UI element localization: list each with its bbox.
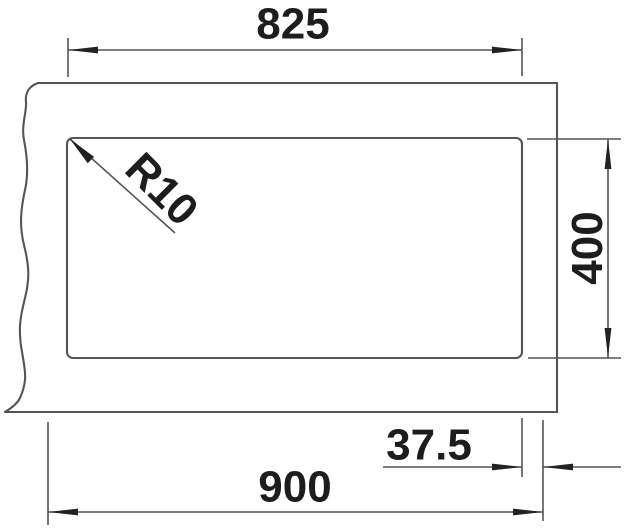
arrow-400-down-icon [605,328,612,358]
object-lines [5,83,557,412]
dimension-900-label: 900 [258,463,331,512]
dimension-lines [48,38,621,525]
arrow-375-right-icon [543,464,573,471]
arrowheads [48,47,611,516]
dimension-825-label: 825 [256,0,329,49]
break-line [5,83,38,412]
technical-drawing: 825 400 37.5 900 R10 [0,0,625,531]
arrow-900-right-icon [513,509,543,516]
arrow-900-left-icon [48,509,78,516]
corner-radius-label: R10 [116,143,208,235]
arrow-825-left-icon [68,47,98,54]
dimension-400-label: 400 [563,211,612,284]
sink-cutout-diagram: 825 400 37.5 900 R10 [0,0,625,531]
dimension-375-label: 37.5 [386,421,472,470]
arrow-radius-icon [70,139,94,163]
arrow-825-right-icon [492,47,522,54]
sink-outline [5,83,557,412]
arrow-375-left-icon [492,464,522,471]
arrow-400-up-icon [605,139,612,169]
dimension-labels: 825 400 37.5 900 R10 [116,0,612,512]
